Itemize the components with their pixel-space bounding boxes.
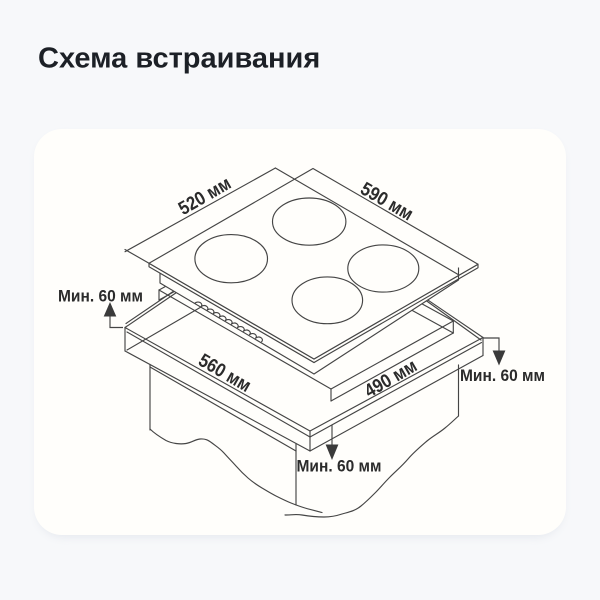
svg-text:Мин. 60 мм: Мин. 60 мм: [297, 457, 382, 476]
svg-text:Схема встраивания: Схема встраивания: [38, 43, 320, 75]
svg-text:Мин. 60 мм: Мин. 60 мм: [58, 287, 143, 306]
svg-text:Мин. 60 мм: Мин. 60 мм: [460, 366, 545, 385]
